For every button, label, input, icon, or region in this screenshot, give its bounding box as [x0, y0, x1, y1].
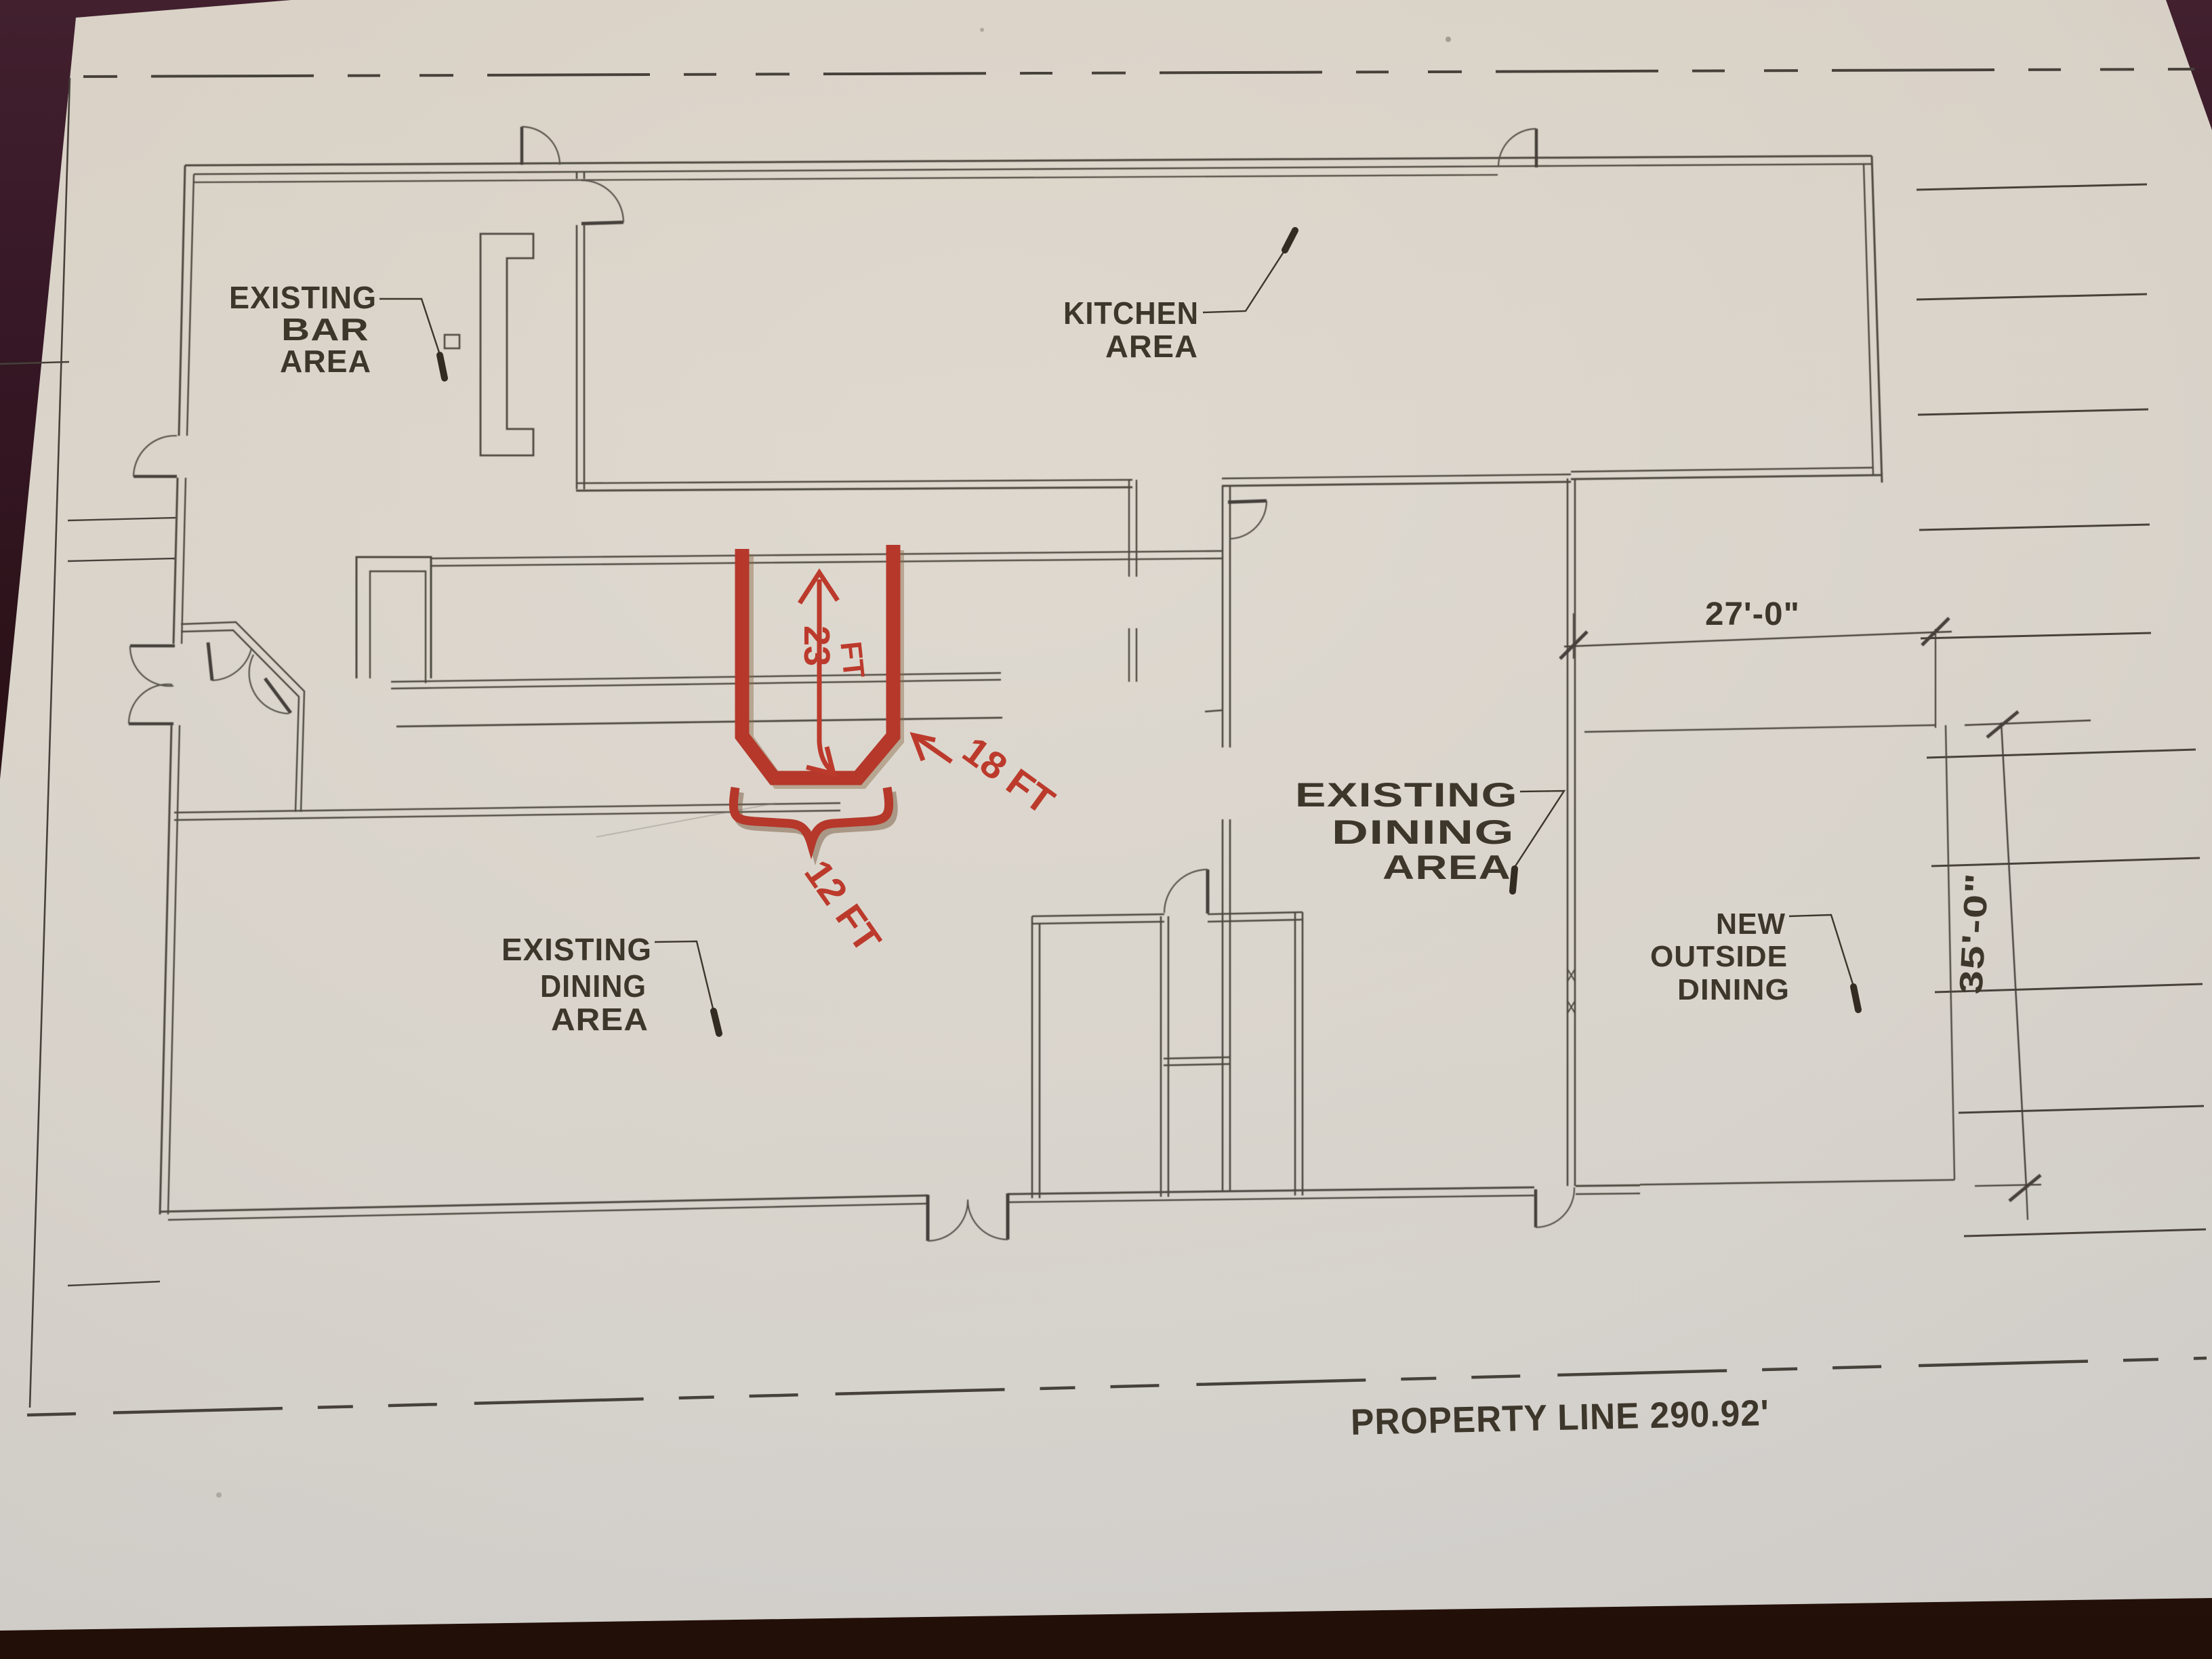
svg-text:DINING: DINING: [540, 968, 647, 1004]
svg-text:EXISTING: EXISTING: [1295, 776, 1518, 814]
svg-text:EXISTING: EXISTING: [501, 932, 652, 967]
svg-text:KITCHEN: KITCHEN: [1063, 295, 1199, 331]
svg-text:35'-0": 35'-0": [1953, 872, 1995, 996]
svg-text:FT: FT: [834, 640, 870, 680]
svg-text:DINING: DINING: [1677, 973, 1790, 1006]
svg-text:AREA: AREA: [1382, 848, 1511, 886]
svg-text:AREA: AREA: [1105, 329, 1198, 364]
svg-text:NEW: NEW: [1716, 907, 1786, 941]
svg-text:23: 23: [796, 626, 837, 666]
svg-text:AREA: AREA: [551, 1002, 649, 1037]
svg-text:BAR: BAR: [281, 312, 369, 347]
svg-text:OUTSIDE: OUTSIDE: [1650, 940, 1788, 973]
svg-text:27'-0": 27'-0": [1705, 596, 1800, 632]
svg-text:DINING: DINING: [1332, 813, 1515, 851]
svg-text:EXISTING: EXISTING: [229, 280, 377, 315]
svg-text:AREA: AREA: [280, 344, 371, 379]
